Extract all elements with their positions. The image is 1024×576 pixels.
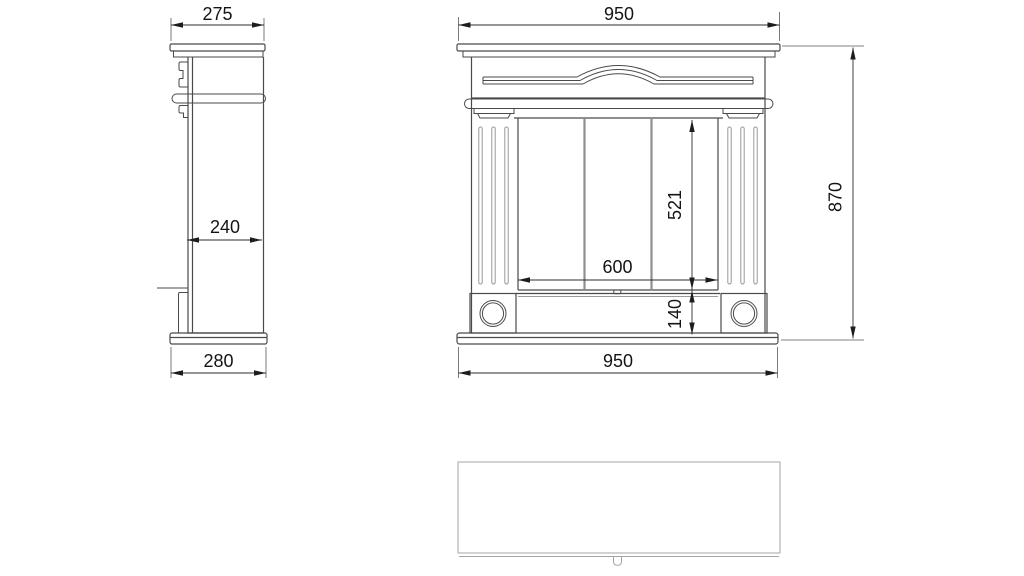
side-base: [170, 333, 267, 344]
side-view: [157, 44, 267, 344]
technical-drawing-canvas: 275 240 280: [0, 0, 1024, 576]
side-plinth-front: [179, 293, 189, 334]
dimension-front-plinth-height: 140: [665, 291, 692, 335]
dimension-side-top-width: 275: [171, 4, 264, 41]
flute: [492, 127, 495, 284]
plan-center-clip: [614, 557, 622, 565]
flute: [741, 127, 744, 284]
front-view: [457, 44, 780, 344]
front-frieze-arch-molding: [483, 66, 753, 85]
plan-view: [458, 462, 780, 565]
dim-label-front-opening-width: 600: [602, 257, 632, 277]
front-left-capital: [474, 109, 514, 119]
dim-label-side-body-depth: 240: [210, 217, 240, 237]
dim-label-side-top-width: 275: [202, 4, 232, 24]
extension-lines: [781, 46, 864, 340]
front-left-plinth: [470, 294, 516, 334]
side-capital-lower: [179, 106, 188, 118]
front-molding-bar: [465, 99, 774, 109]
side-shelf: [170, 44, 265, 51]
flute: [754, 127, 757, 284]
dim-label-front-base-width: 950: [603, 351, 633, 371]
dim-label-front-top-width: 950: [604, 4, 634, 24]
dimension-front-top-width: 950: [459, 4, 780, 41]
dimension-front-opening-width: 600: [518, 257, 718, 280]
dim-label-front-plinth-height: 140: [665, 299, 685, 329]
dim-label-front-opening-height: 521: [665, 190, 685, 220]
dim-label-front-total-height: 870: [826, 182, 846, 212]
dimension-side-base-depth: 280: [171, 347, 266, 378]
right-rosette-outer-circle: [731, 301, 757, 327]
left-rosette-outer-circle: [480, 301, 506, 327]
front-right-plinth: [721, 294, 767, 334]
left-rosette-inner-circle: [482, 303, 503, 324]
plan-outline: [458, 462, 780, 553]
front-right-pilaster-flutes: [728, 127, 757, 284]
dimension-front-opening-height: 521: [665, 120, 692, 290]
front-frieze-outline: [472, 57, 766, 333]
side-shelf-lip: [174, 51, 264, 57]
side-molding-bar: [172, 94, 266, 103]
flute: [728, 127, 731, 284]
dimension-front-total-height: 870: [781, 46, 864, 340]
side-body: [188, 57, 264, 333]
front-shelf: [457, 44, 780, 51]
front-right-capital: [723, 109, 763, 119]
dimension-front-base-width: 950: [459, 347, 778, 378]
right-rosette-inner-circle: [733, 303, 754, 324]
dim-label-side-base-depth: 280: [203, 351, 233, 371]
front-left-pilaster-flutes: [479, 127, 508, 284]
flute: [505, 127, 508, 284]
flute: [479, 127, 482, 284]
drawing-sheet: 275 240 280: [0, 0, 1024, 576]
front-base: [457, 333, 778, 344]
dimension-side-body-depth: 240: [187, 217, 262, 240]
front-shelf-lip: [463, 51, 775, 57]
side-capital-upper: [179, 62, 188, 87]
